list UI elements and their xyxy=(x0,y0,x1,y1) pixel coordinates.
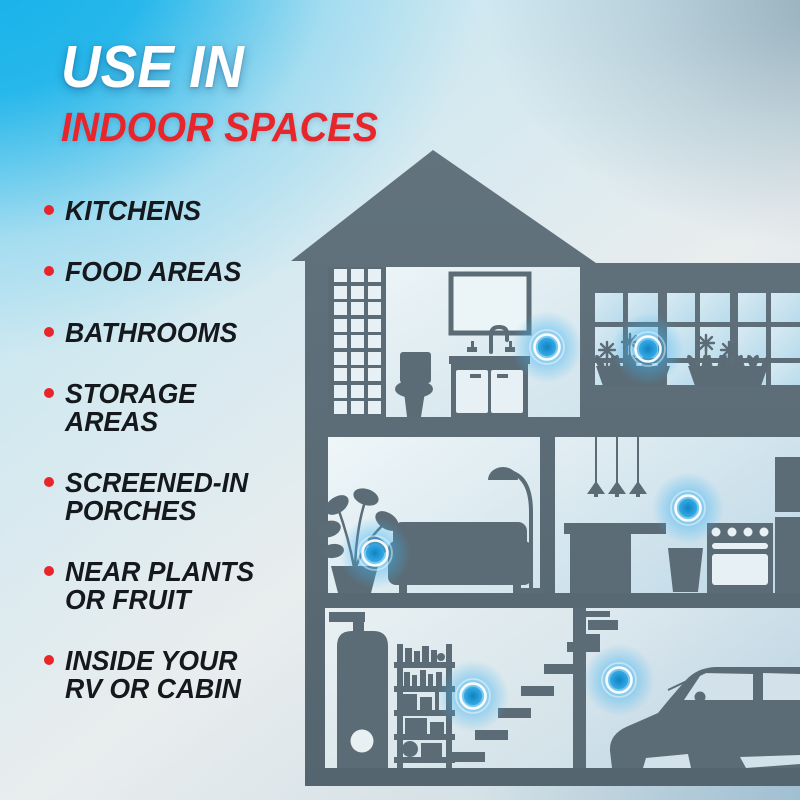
infographic-root: USE IN INDOOR SPACES KITCHENS FOOD AREAS… xyxy=(0,0,800,800)
placement-dot-kitchen xyxy=(652,472,724,544)
placement-dot-bathroom xyxy=(511,311,583,383)
placement-dot-garage xyxy=(583,644,655,716)
placement-dot-basement xyxy=(437,660,509,732)
bathroom-tiled-wall xyxy=(328,267,386,417)
placement-dot-living-room xyxy=(339,517,411,589)
placement-dot-window-planters xyxy=(612,313,684,385)
trash-can xyxy=(668,548,703,592)
house-cutaway-illustration xyxy=(0,0,800,800)
bathroom-mirror xyxy=(451,274,529,333)
pendant-lights xyxy=(587,437,647,497)
stove-oven xyxy=(707,523,773,593)
kitchen-cabinet-fridge xyxy=(775,457,800,593)
